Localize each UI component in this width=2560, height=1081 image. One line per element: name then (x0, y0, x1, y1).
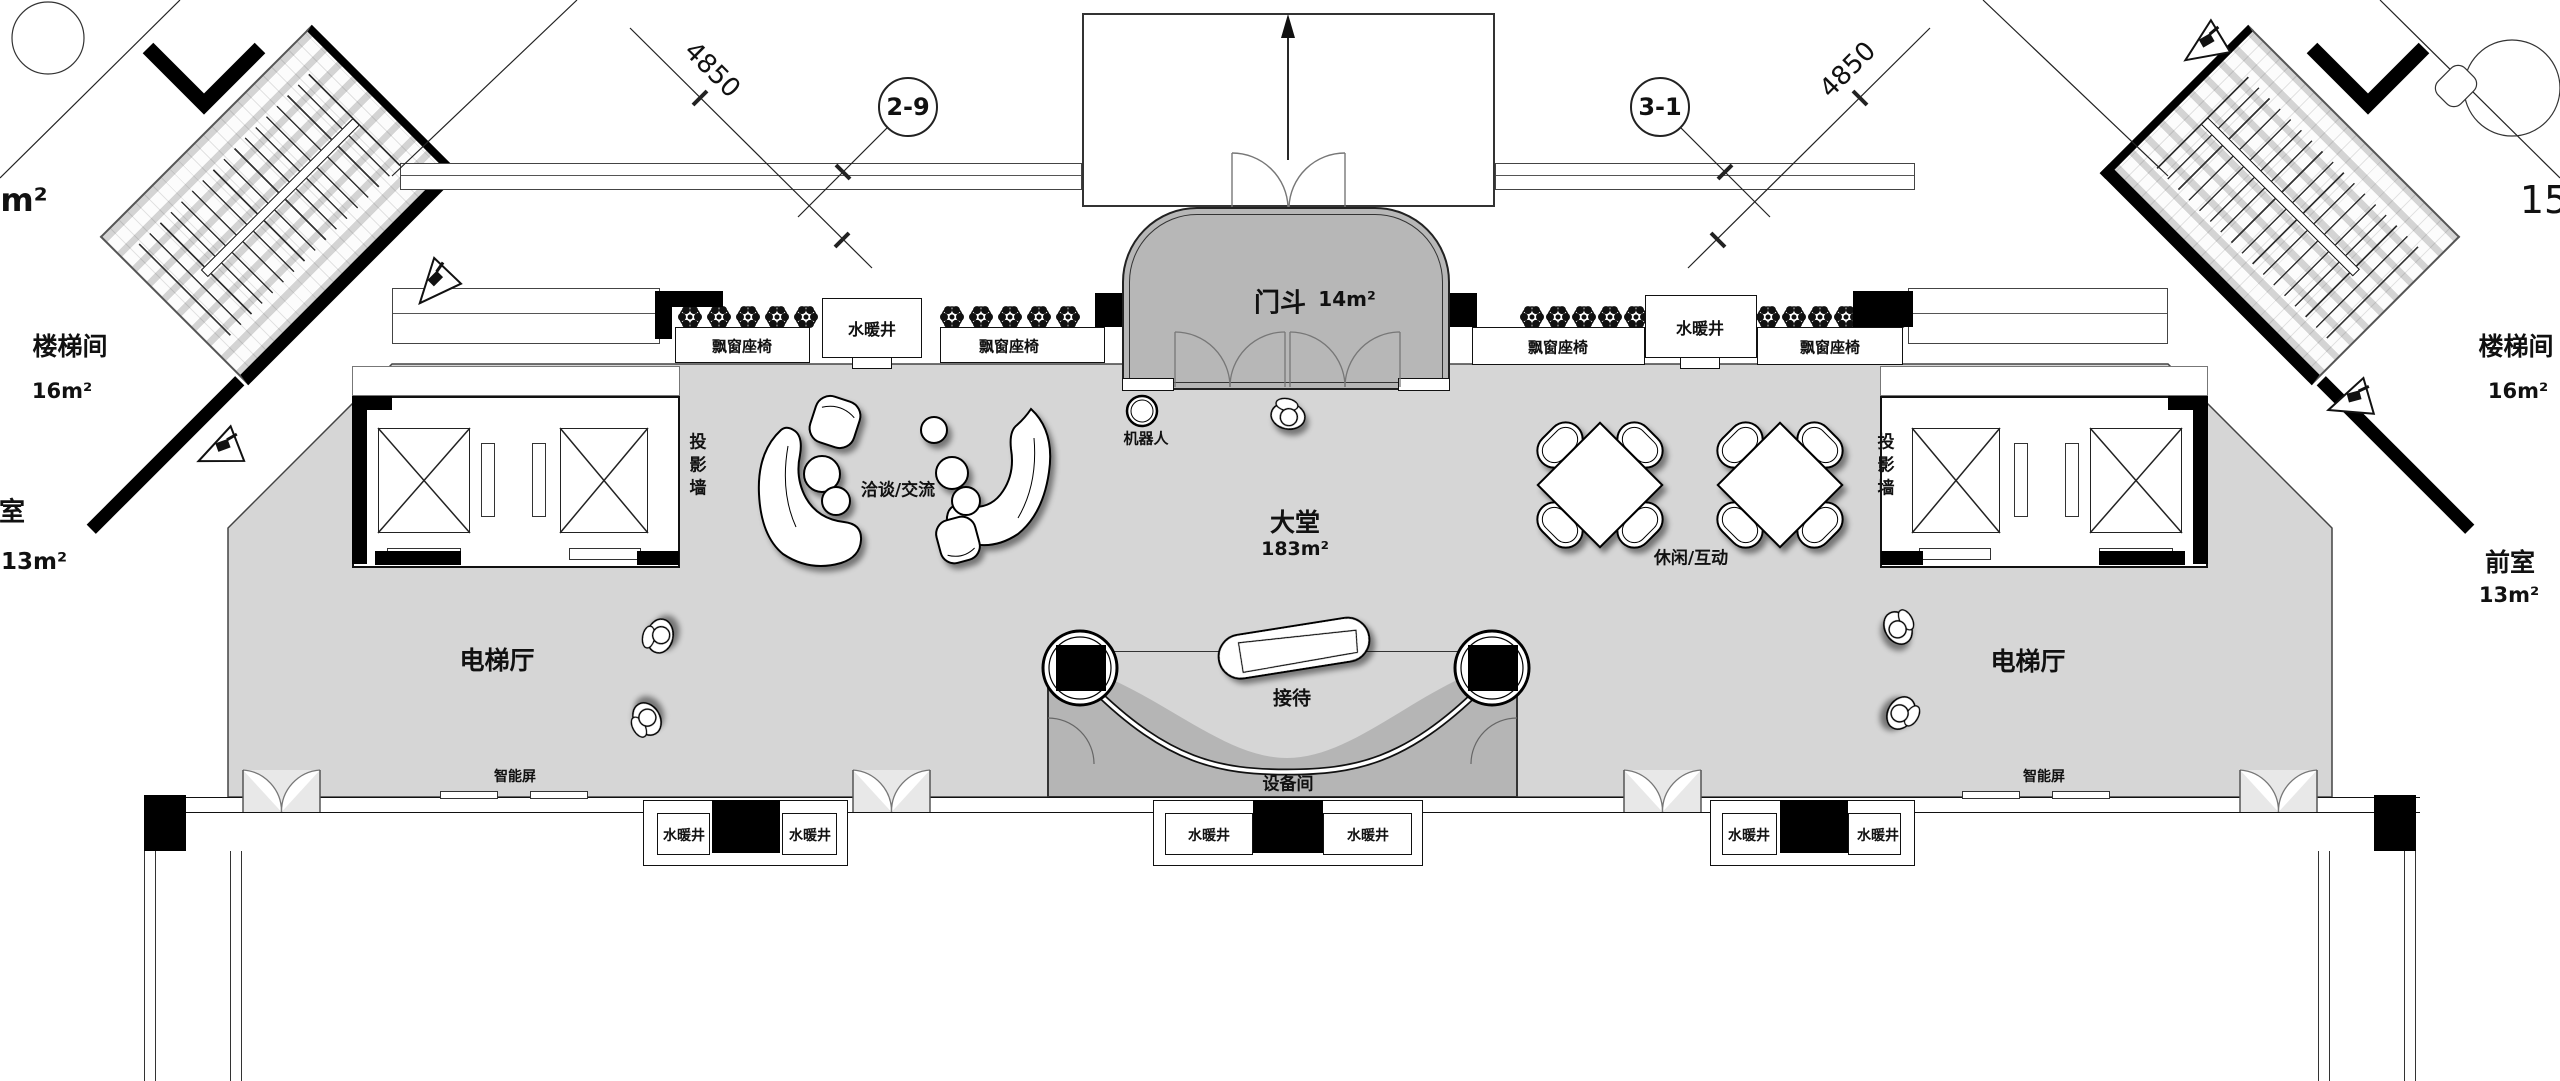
label-shaft: 水暖井 (1188, 825, 1230, 845)
label-negotiation: 洽谈/交流 (861, 476, 935, 501)
room-area-vestibule: 14m² (1318, 287, 1375, 311)
label-shaft: 水暖井 (1347, 825, 1389, 845)
dimension-text-left: 4850 (678, 36, 746, 104)
room-label-lobby: 大堂 (1270, 503, 1320, 539)
label-robot: 机器人 (1123, 428, 1168, 449)
label-shaft: 水暖井 (789, 825, 831, 845)
label-bay-seat: 飘窗座椅 (979, 336, 1039, 357)
room-label-vestibule: 门斗 (1254, 283, 1306, 320)
label-bay-seat: 飘窗座椅 (712, 336, 772, 357)
room-label-front-room-left-partial: 室 (0, 492, 25, 529)
text-labels: 4850 4850 门斗 14m² 大堂 183m² 电梯厅 电梯厅 楼梯间 1… (0, 0, 2560, 1081)
room-label-stairwell-right: 楼梯间 (2478, 327, 2553, 363)
dimension-text-right: 4850 (1814, 36, 1882, 104)
room-area-stairwell-right: 16m² (2488, 379, 2548, 403)
label-projection-wall-left: 投影墙 (684, 433, 709, 502)
room-label-front-room-right: 前室 (2485, 543, 2535, 579)
label-leisure: 休闲/互动 (1654, 544, 1728, 569)
label-shaft: 水暖井 (663, 825, 705, 845)
partial-area-label-left: m² (0, 181, 47, 219)
label-projection-wall-right: 投影墙 (1872, 433, 1897, 502)
label-shaft: 水暖井 (1857, 825, 1899, 845)
label-bay-seat: 飘窗座椅 (1528, 337, 1588, 358)
room-label-stairwell-left: 楼梯间 (32, 327, 107, 363)
room-label-equipment: 设备间 (1263, 770, 1314, 795)
label-shaft: 水暖井 (1676, 315, 1724, 339)
label-reception: 接待 (1273, 684, 1311, 711)
room-area-lobby: 183m² (1261, 538, 1329, 560)
grid-bubble-right: 3-1 (1630, 77, 1690, 137)
grid-bubble-left: 2-9 (878, 77, 938, 137)
room-label-elevator-hall-left: 电梯厅 (459, 641, 534, 677)
label-smart-screen: 智能屏 (2023, 766, 2065, 786)
label-shaft: 水暖井 (1728, 825, 1770, 845)
floor-plan: 4850 4850 门斗 14m² 大堂 183m² 电梯厅 电梯厅 楼梯间 1… (0, 0, 2560, 1081)
label-shaft: 水暖井 (848, 316, 896, 340)
room-label-elevator-hall-right: 电梯厅 (1990, 642, 2065, 678)
room-area-stairwell-left: 16m² (32, 379, 92, 403)
label-smart-screen: 智能屏 (494, 766, 536, 786)
room-area-front-room-left: 13m² (1, 549, 67, 575)
partial-room-number-right: 15 (2520, 178, 2560, 222)
room-area-front-room-right: 13m² (2479, 583, 2539, 607)
label-bay-seat: 飘窗座椅 (1800, 337, 1860, 358)
